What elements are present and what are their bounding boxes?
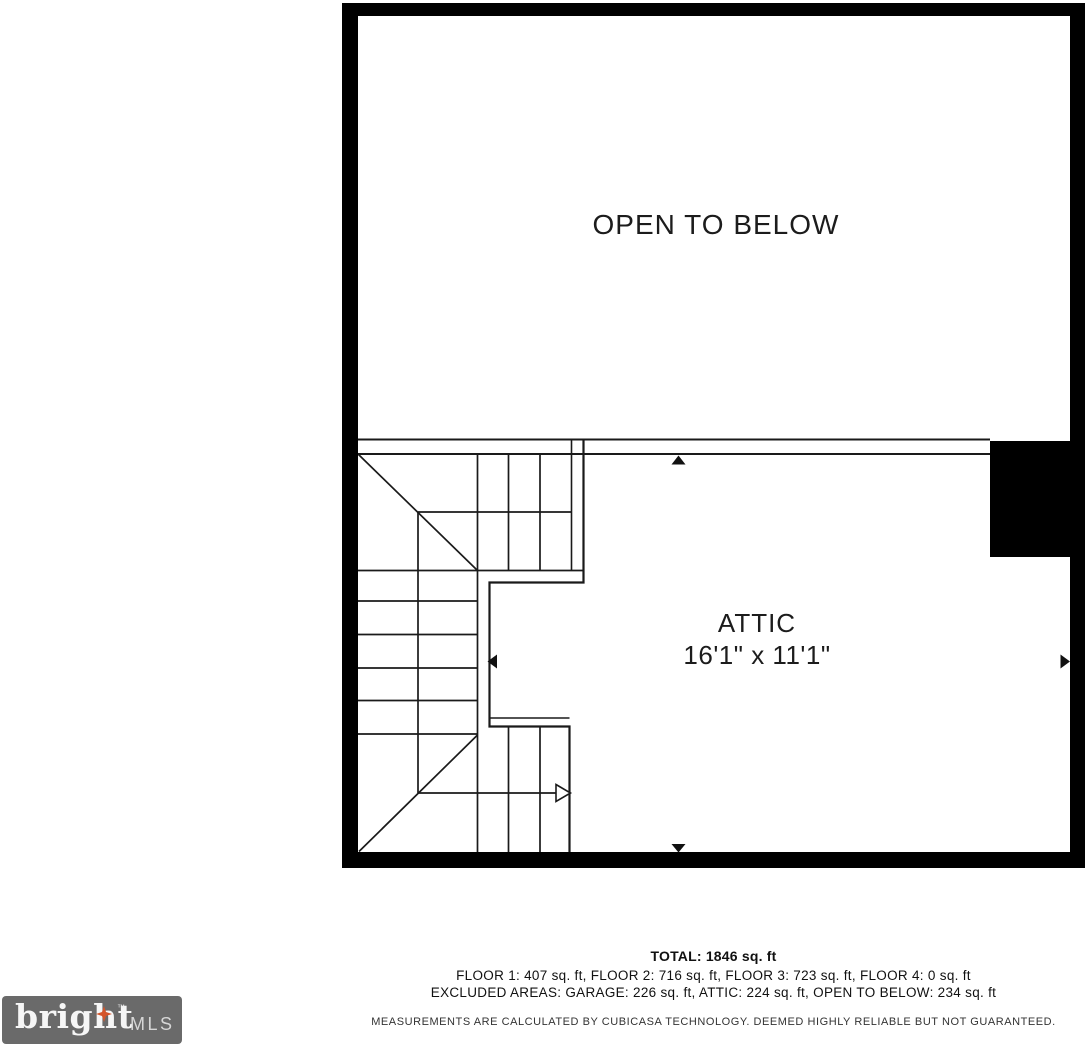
bright-mls-logo: bright ™ MLS (2, 996, 182, 1044)
wall-bottom (342, 852, 1085, 868)
logo-trademark: ™ (117, 1003, 125, 1012)
logo-star-icon (95, 1005, 113, 1023)
logo-suffix-text: MLS (130, 1015, 175, 1033)
open-to-below-label: OPEN TO BELOW (593, 209, 840, 240)
extent-marker-right-icon (1061, 655, 1071, 669)
stair-direction-arrow-head-icon (556, 785, 571, 802)
floor-breakdown-text: FLOOR 1: 407 sq. ft, FLOOR 2: 716 sq. ft… (342, 968, 1085, 983)
total-area-text: TOTAL: 1846 sq. ft (342, 948, 1085, 964)
level-boundary-lines (358, 440, 990, 455)
floorplan-drawing: OPEN TO BELOW ATTIC 16'1" x 11'1" (0, 0, 1085, 1046)
excluded-areas-text: EXCLUDED AREAS: GARAGE: 226 sq. ft, ATTI… (342, 985, 1085, 1000)
attic-label: ATTIC (718, 608, 796, 638)
wall-right (1070, 3, 1085, 868)
logo-brand-text: bright (15, 997, 133, 1037)
extent-marker-down-icon (672, 844, 686, 853)
extent-marker-up-icon (672, 456, 686, 465)
solid-wall-block (990, 441, 1085, 557)
stairwell-wall-inner (490, 439, 572, 718)
exterior-walls (342, 3, 1085, 868)
stairwell-wall-outer (490, 439, 584, 852)
attic-dimensions: 16'1" x 11'1" (683, 640, 830, 670)
staircase (358, 454, 584, 852)
wall-left (342, 3, 358, 868)
floorplan-page: OPEN TO BELOW ATTIC 16'1" x 11'1" TOTAL:… (0, 0, 1085, 1046)
wall-top (342, 3, 1085, 16)
disclaimer-text: MEASUREMENTS ARE CALCULATED BY CUBICASA … (342, 1016, 1085, 1028)
